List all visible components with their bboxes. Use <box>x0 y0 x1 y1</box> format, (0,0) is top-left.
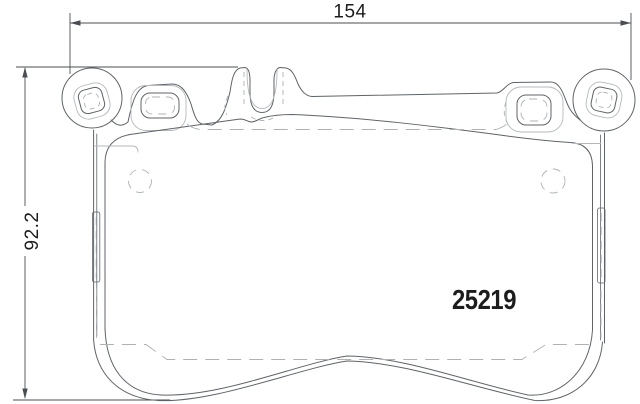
width-dimension: 154 <box>70 2 631 81</box>
dim-arrow-right-icon <box>621 20 632 25</box>
bottom-edge-inner <box>105 328 593 395</box>
width-dimension-label: 154 <box>333 2 366 23</box>
right-face-hole <box>541 169 565 193</box>
backplate-outline <box>94 68 605 401</box>
right-mounting-ear <box>573 69 635 131</box>
wear-indicator-strip-right <box>598 208 605 338</box>
dim-arrow-down-icon <box>22 389 27 400</box>
drawing-canvas: 154 92.2 <box>0 0 640 404</box>
friction-face-outline <box>95 115 601 396</box>
hidden-friction-outline <box>100 96 597 360</box>
left-ear-hole <box>77 86 106 115</box>
height-dimension: 92.2 <box>13 67 238 400</box>
height-dimension-label: 92.2 <box>22 212 43 251</box>
left-face-hole <box>129 170 152 193</box>
dim-arrow-up-icon <box>22 67 27 78</box>
bottom-edge-outer <box>94 340 603 401</box>
right-lug <box>506 87 563 132</box>
left-mounting-ear <box>62 68 122 128</box>
dim-arrow-left-icon <box>70 20 81 25</box>
right-ear-hole <box>590 86 618 114</box>
part-number-label: 25219 <box>452 283 516 315</box>
left-lug <box>131 86 186 131</box>
brake-pad-technical-drawing: 154 92.2 <box>0 0 640 404</box>
right-lug-hole <box>517 95 551 125</box>
face-holes <box>129 169 566 193</box>
